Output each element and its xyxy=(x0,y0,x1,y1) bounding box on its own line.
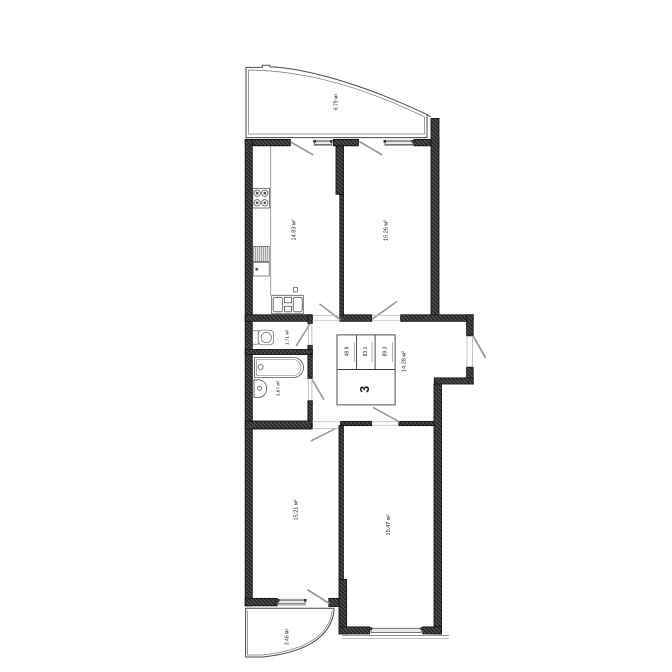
svg-text:14.28 м²: 14.28 м² xyxy=(402,351,408,372)
svg-text:3.67 м²: 3.67 м² xyxy=(276,380,281,396)
svg-text:14.83 м²: 14.83 м² xyxy=(292,219,298,240)
svg-text:15.47 м²: 15.47 м² xyxy=(386,514,392,535)
svg-text:1.71 м²: 1.71 м² xyxy=(285,329,290,345)
svg-text:83.1: 83.1 xyxy=(363,346,369,356)
svg-text:3: 3 xyxy=(358,386,372,393)
svg-text:15.26 м²: 15.26 м² xyxy=(384,220,390,241)
svg-text:48.9: 48.9 xyxy=(345,346,351,356)
svg-text:15.21 м²: 15.21 м² xyxy=(294,499,300,520)
svg-text:89.3: 89.3 xyxy=(383,346,389,356)
svg-text:3.46 м²: 3.46 м² xyxy=(285,629,291,646)
svg-text:6.79 м²: 6.79 м² xyxy=(334,94,340,111)
